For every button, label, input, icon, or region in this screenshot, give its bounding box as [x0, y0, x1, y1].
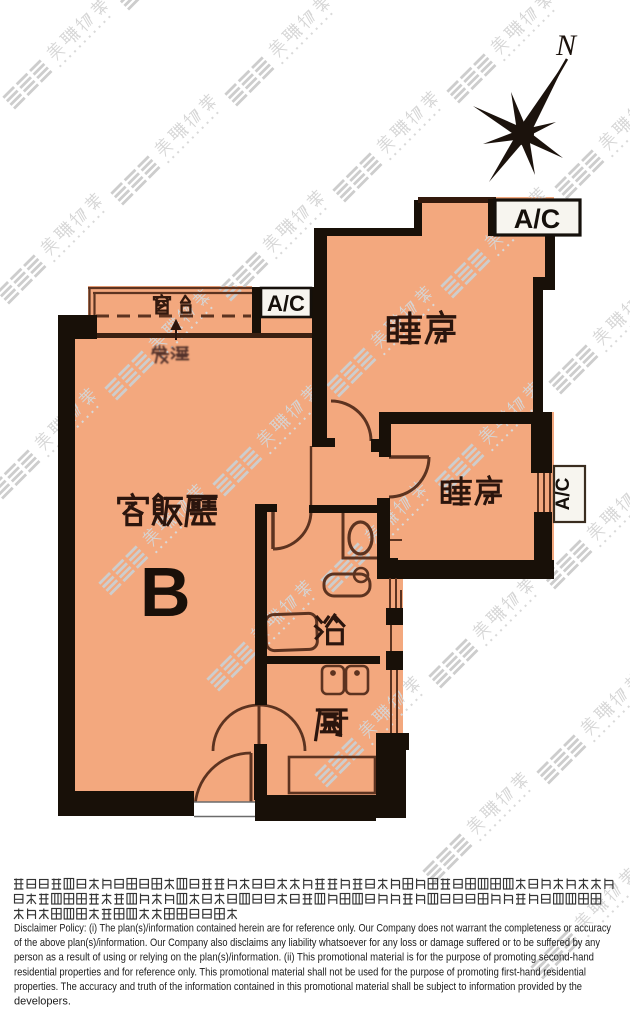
svg-text:B: B [140, 553, 191, 631]
svg-text:A/C: A/C [267, 291, 305, 316]
svg-text:A/C: A/C [514, 204, 561, 234]
svg-text:Disclaimer Policy: (i) The pla: Disclaimer Policy: (i) The plan(s)/infor… [14, 923, 611, 935]
svg-text:N: N [555, 29, 578, 62]
svg-text:person as a result of using or: person as a result of using or relying o… [14, 952, 594, 964]
svg-text:developers.: developers. [14, 996, 71, 1008]
svg-text:A/C: A/C [553, 477, 574, 510]
svg-text:of the above plan(s)/informati: of the above plan(s)/information. Our Co… [14, 937, 600, 949]
svg-text:residential properties and for: residential properties and for reference… [14, 966, 586, 978]
svg-text:properties. The accuracy and t: properties. The accuracy and truth of th… [14, 981, 582, 993]
